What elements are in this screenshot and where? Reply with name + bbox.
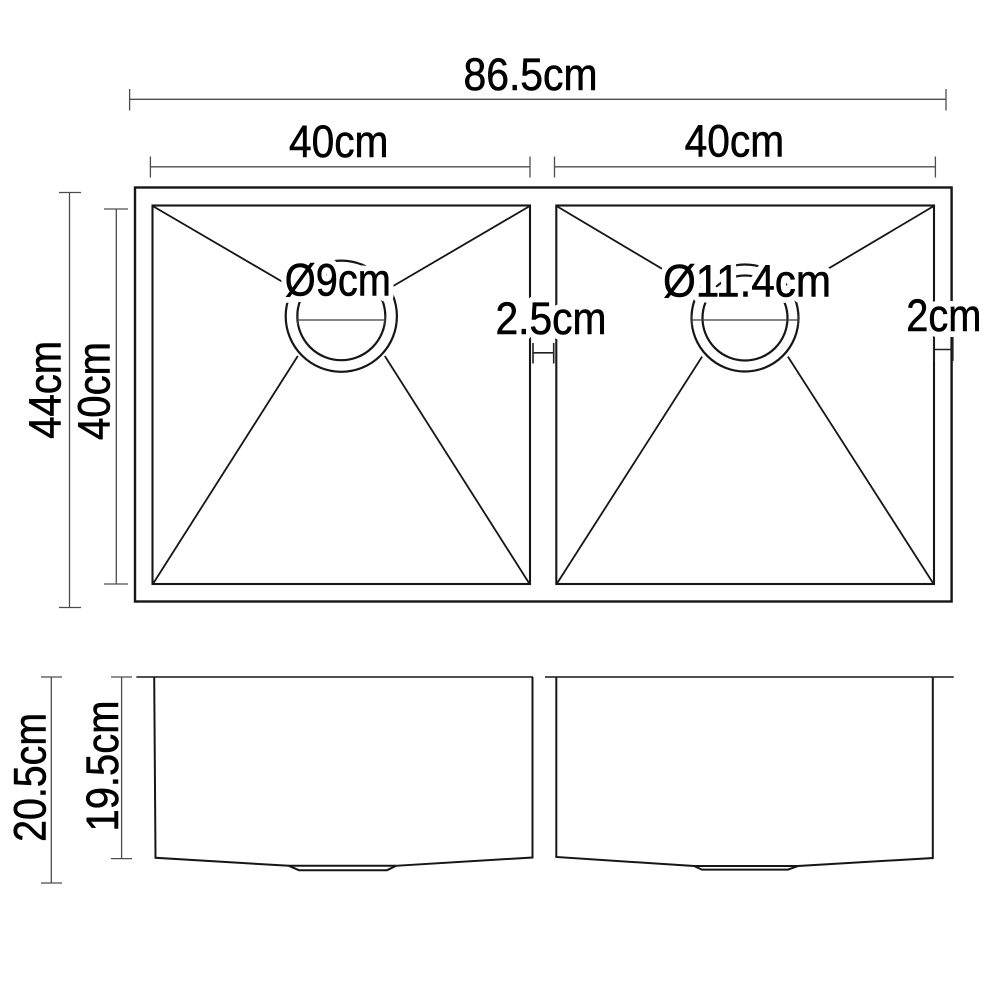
svg-text:19.5cm: 19.5cm: [77, 701, 128, 832]
svg-text:40cm: 40cm: [68, 342, 119, 440]
svg-text:Ø9cm: Ø9cm: [285, 255, 391, 306]
svg-text:86.5cm: 86.5cm: [464, 49, 598, 100]
svg-text:2cm: 2cm: [906, 290, 981, 341]
svg-text:44cm: 44cm: [19, 341, 70, 439]
svg-text:40cm: 40cm: [685, 116, 785, 167]
svg-text:40cm: 40cm: [289, 116, 389, 167]
svg-text:Ø11.4cm: Ø11.4cm: [663, 256, 831, 307]
svg-text:2.5cm: 2.5cm: [496, 293, 607, 344]
svg-text:20.5cm: 20.5cm: [5, 713, 56, 842]
